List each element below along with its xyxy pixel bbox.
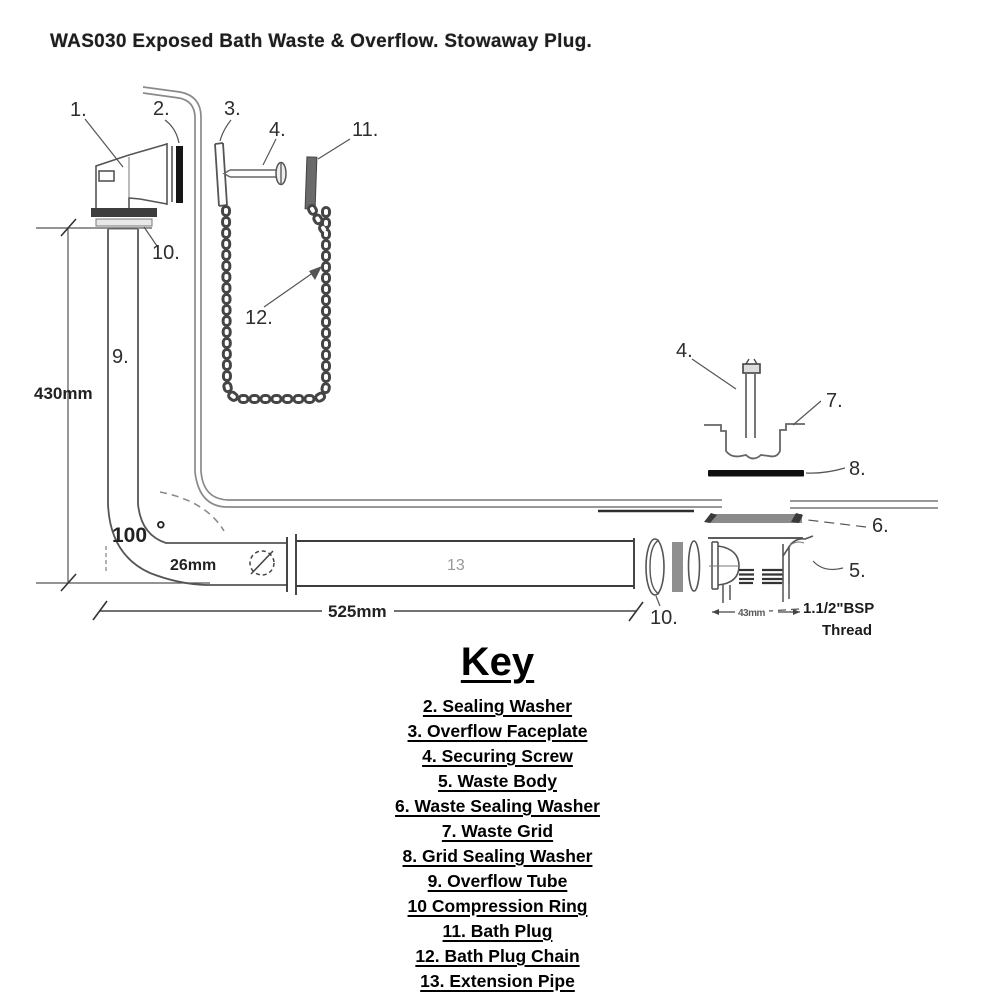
- key-item-bath-plug-chain: 12. Bath Plug Chain: [0, 944, 995, 969]
- callout-bath-plug-chain: 12.: [245, 307, 273, 329]
- degree-symbol: °: [156, 517, 166, 544]
- key-item-extension-pipe: 13. Extension Pipe: [0, 969, 995, 994]
- page: WAS030 Exposed Bath Waste & Overflow. St…: [0, 0, 1005, 1005]
- bath-plug-chain: [226, 207, 326, 399]
- callout-overflow-tube: 9.: [112, 346, 129, 368]
- key-item-waste-body: 5. Waste Body: [0, 769, 995, 794]
- callout-overflow-faceplate: 3.: [224, 98, 241, 120]
- callout-extension-pipe: 13: [447, 557, 465, 574]
- tube-diameter-label: 26mm: [170, 557, 216, 574]
- bend-angle-label: 100: [112, 524, 147, 547]
- key-item-overflow-faceplate: 3. Overflow Faceplate: [0, 719, 995, 744]
- securing-screw-right: [743, 359, 760, 438]
- key-item-bath-plug: 11. Bath Plug: [0, 919, 995, 944]
- waste-sealing-washer: [704, 513, 803, 523]
- assembled-overflow-pipe: [143, 87, 938, 511]
- key-item-grid-sealing-washer: 8. Grid Sealing Washer: [0, 844, 995, 869]
- diameter-symbol: [250, 551, 274, 575]
- compression-ring-right: [646, 539, 683, 595]
- callout-grid-sealing-washer: 8.: [849, 458, 866, 480]
- key-item-securing-screw: 4. Securing Screw: [0, 744, 995, 769]
- key-list: 2. Sealing Washer 3. Overflow Faceplate …: [0, 694, 995, 994]
- bsp-thread-hatching: [739, 570, 783, 583]
- callout-bath-plug: 11.: [352, 119, 378, 141]
- key-item-compression-ring: 10 Compression Ring: [0, 894, 995, 919]
- callout-compression-ring-right: 10.: [650, 607, 678, 629]
- sealing-washer: [176, 146, 183, 203]
- compression-nut-light-band: [96, 219, 152, 226]
- key-item-waste-sealing-washer: 6. Waste Sealing Washer: [0, 794, 995, 819]
- securing-screw-left: [224, 163, 286, 185]
- waste-width-label: 43mm: [738, 608, 766, 619]
- compression-nut-dark-band: [91, 208, 157, 217]
- key-item-sealing-washer: 2. Sealing Washer: [0, 694, 995, 719]
- callout-compression-ring-left: 10.: [152, 242, 180, 264]
- callout-overflow-body: 1.: [70, 99, 87, 121]
- tube-diameter-dimension: 26mm: [170, 551, 274, 575]
- exploded-diagram: 43mm 430mm: [0, 0, 1005, 648]
- chain-leader-arrowhead: [309, 266, 322, 280]
- key-item-overflow-tube: 9. Overflow Tube: [0, 869, 995, 894]
- length-dimension: 525mm: [93, 601, 643, 621]
- overflow-body: [91, 143, 172, 226]
- height-dimension-label: 430mm: [34, 384, 93, 403]
- bsp-thread-label-line2: Thread: [822, 622, 872, 639]
- exploded-diagram-svg: 43mm 430mm: [0, 0, 1005, 648]
- callout-sealing-washer: 2.: [153, 98, 170, 120]
- bsp-thread-label-line1: 1.1/2"BSP: [803, 600, 874, 617]
- grid-sealing-washer: [708, 470, 804, 477]
- length-dimension-label: 525mm: [328, 602, 387, 621]
- key-item-waste-grid: 7. Waste Grid: [0, 819, 995, 844]
- callout-waste-grid: 7.: [826, 390, 843, 412]
- callout-waste-body: 5.: [849, 560, 866, 582]
- waste-body: 43mm: [689, 536, 814, 619]
- callout-securing-screw-left: 4.: [269, 119, 286, 141]
- bath-plug: [305, 157, 317, 209]
- callout-waste-sealing-washer: 6.: [872, 515, 889, 537]
- callout-securing-screw-right: 4.: [676, 340, 693, 362]
- key-heading: Key: [0, 640, 995, 685]
